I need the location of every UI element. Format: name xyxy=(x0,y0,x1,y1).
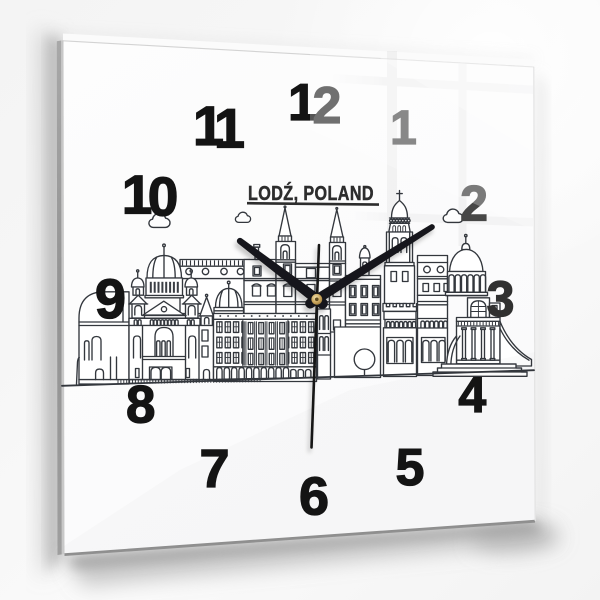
svg-text:LODŹ, POLAND: LODŹ, POLAND xyxy=(248,182,374,205)
svg-text:10: 10 xyxy=(122,164,179,228)
svg-text:3: 3 xyxy=(487,271,515,327)
svg-text:8: 8 xyxy=(126,375,155,434)
svg-text:9: 9 xyxy=(95,267,126,330)
svg-text:11: 11 xyxy=(193,94,245,160)
